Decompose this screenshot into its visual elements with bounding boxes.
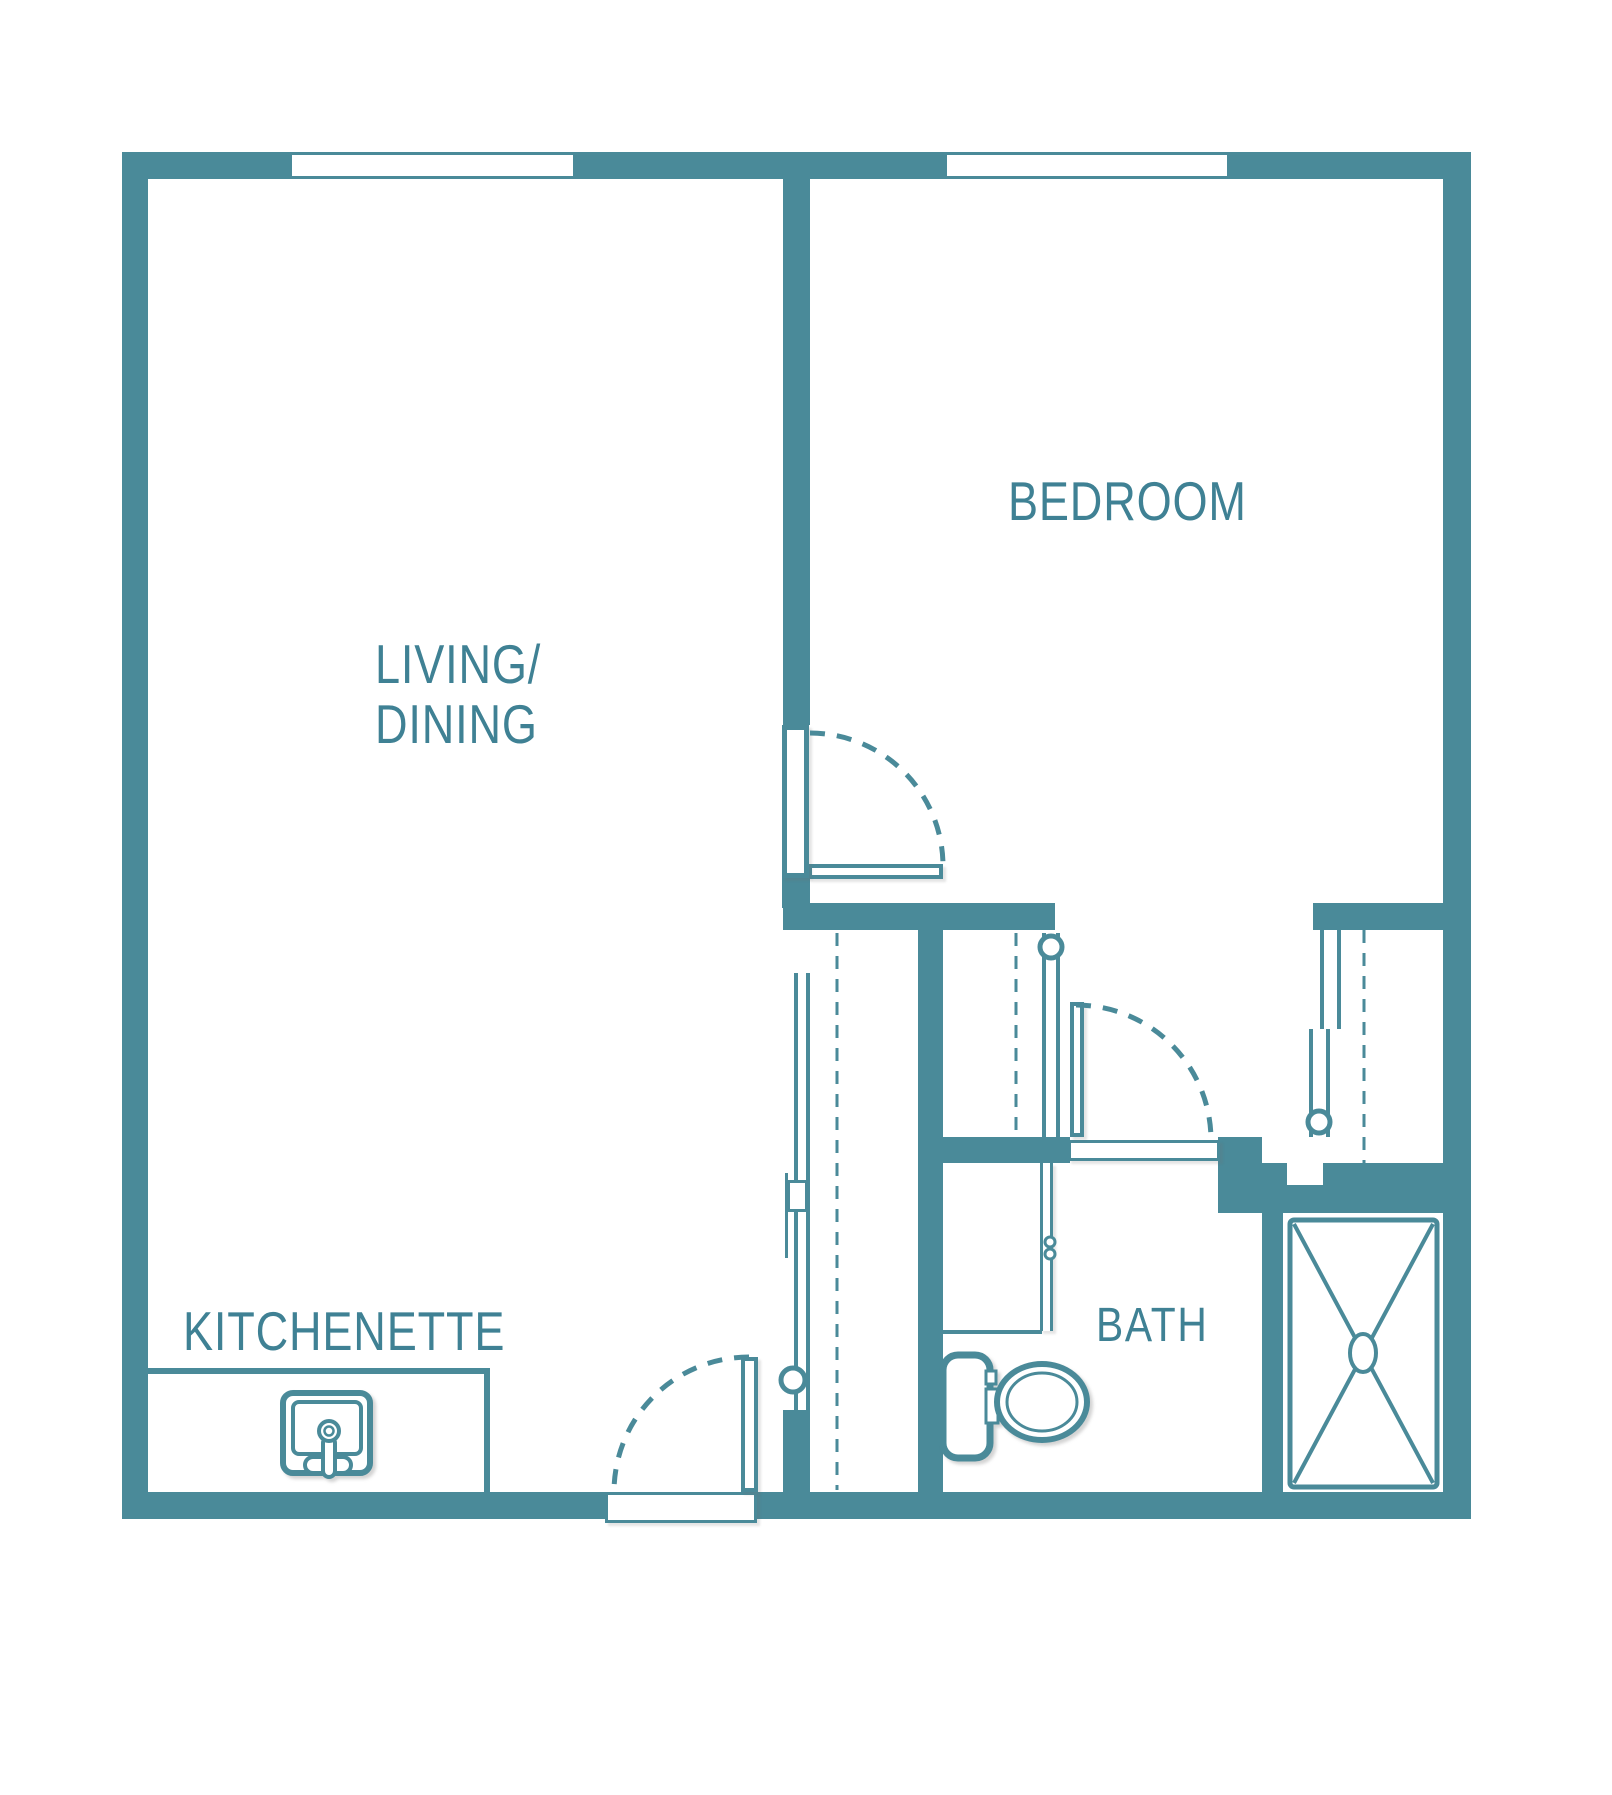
shower-drain [1350,1334,1376,1372]
bath-door-leaf [1070,1002,1084,1137]
vanity-front-edge [1040,1163,1053,1331]
wall-center-divider [783,179,810,725]
shower-wall-notch [1287,1163,1323,1185]
toilet-tank [943,1355,990,1458]
bath-door-threshold [1068,1140,1220,1161]
wall-left [122,152,148,1519]
hall-closet-jamb-line [785,1173,788,1258]
bedroom-door-leaf [782,725,809,878]
wall-bottom [122,1492,1471,1519]
bedroom-door-swing-arc [810,733,943,866]
bedroom-closet-door-upper [1320,930,1341,1029]
wall-bath-northeast [1218,1137,1262,1213]
toilet-icon [943,1355,1087,1458]
kitchenette-counter-top-edge [148,1368,490,1374]
vanity-counter [943,1163,1042,1334]
shower-pan [1290,1220,1437,1487]
wall-hall-closet-stub [783,1410,810,1492]
living-dining-label-line1: LIVING/ [375,633,541,696]
entry-door-swing-arc [614,1357,749,1492]
wall-bath-west [918,930,943,1495]
entry-door-leaf [741,1357,758,1492]
entry-door-threshold [605,1492,757,1523]
wall-shower-west [1262,1213,1283,1495]
kitchenette-counter-right-edge [484,1368,490,1492]
hall-closet-panel [787,1180,808,1212]
shower-icon [1290,1220,1437,1487]
bath-door-swing-arc [1076,1005,1211,1140]
bedroom-door-sill [808,864,943,879]
toilet-bowl [997,1364,1087,1440]
wall-right [1443,152,1471,1519]
kitchen-sink-icon [283,1393,370,1477]
kitchenette-label: KITCHENETTE [183,1300,505,1363]
bedroom-window [945,153,1229,178]
bedroom-closet-door-lower [1309,1029,1330,1137]
wall-bedroom-band-right [1313,903,1443,930]
dressing-wardrobe-door [1042,933,1060,1137]
wall-bath-north [943,1137,1070,1163]
living-dining-window [290,153,575,178]
wall-bedroom-band-left [783,903,1055,930]
bedroom-label: BEDROOM [1008,470,1247,533]
bath-label: BATH [1096,1298,1209,1353]
floor-plan: LIVING/ DINING BEDROOM KITCHENETTE BATH [0,0,1612,1795]
living-dining-label-line2: DINING [375,693,538,756]
